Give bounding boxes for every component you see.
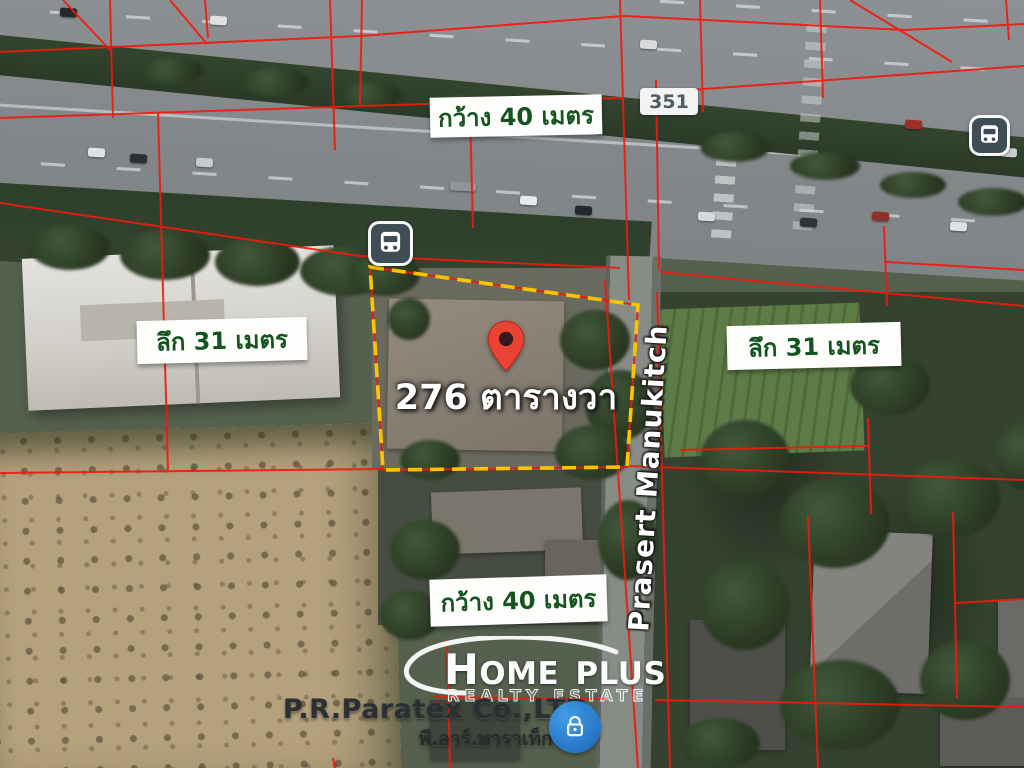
location-pin-icon (486, 320, 526, 372)
tree-blob (555, 425, 630, 480)
area-size-label: 276 ตารางวา (360, 370, 652, 425)
tree-blob (780, 478, 890, 568)
tree-blob (388, 298, 430, 340)
car (520, 195, 538, 205)
car (905, 119, 923, 129)
car (950, 221, 968, 231)
car (872, 211, 890, 221)
tree-blob (920, 640, 1010, 720)
car (196, 157, 214, 167)
car (210, 15, 228, 25)
tree-blob (560, 310, 630, 370)
depth-label-left: ลึก 31 เมตร (137, 317, 308, 364)
car (640, 39, 658, 49)
lock-icon (549, 701, 601, 753)
median-tree (700, 132, 770, 162)
width-label-bottom: กว้าง 40 เมตร (429, 574, 607, 627)
padlock-glyph (560, 712, 590, 742)
bus-glyph (374, 227, 407, 260)
tree-blob (390, 520, 460, 580)
car (130, 153, 148, 163)
lane-marking (0, 0, 1024, 29)
median-tree (340, 82, 402, 108)
route-badge-351: 351 (640, 88, 698, 115)
tree-blob (215, 238, 300, 286)
median-tree (880, 172, 946, 198)
bus-stop-icon (368, 221, 413, 266)
tree-blob (700, 560, 790, 650)
median-tree (790, 152, 860, 180)
bus-stop-icon (969, 115, 1010, 156)
median-tree (958, 188, 1024, 216)
tree-blob (120, 230, 210, 280)
truck (450, 181, 477, 192)
tree-blob (400, 440, 460, 480)
car (60, 7, 78, 17)
depth-label-right: ลึก 31 เมตร (726, 322, 901, 370)
median-tree (140, 58, 204, 84)
tree-blob (700, 420, 790, 500)
car (575, 205, 593, 215)
company-name: P.R.Paratex Co.,LTD (283, 694, 571, 725)
tree-blob (780, 660, 900, 750)
median-tree (240, 68, 310, 96)
car (88, 147, 106, 157)
satellite-property-map: กว้าง 40 เมตร 351 ลึก 31 เมตร ลึก 31 เมต… (0, 0, 1024, 768)
bus-glyph (975, 121, 1004, 150)
width-label-top: กว้าง 40 เมตร (430, 94, 603, 138)
tree-blob (30, 225, 110, 270)
tree-blob (680, 718, 760, 768)
tree-blob (900, 458, 1000, 538)
car (698, 211, 716, 221)
car (800, 217, 818, 227)
